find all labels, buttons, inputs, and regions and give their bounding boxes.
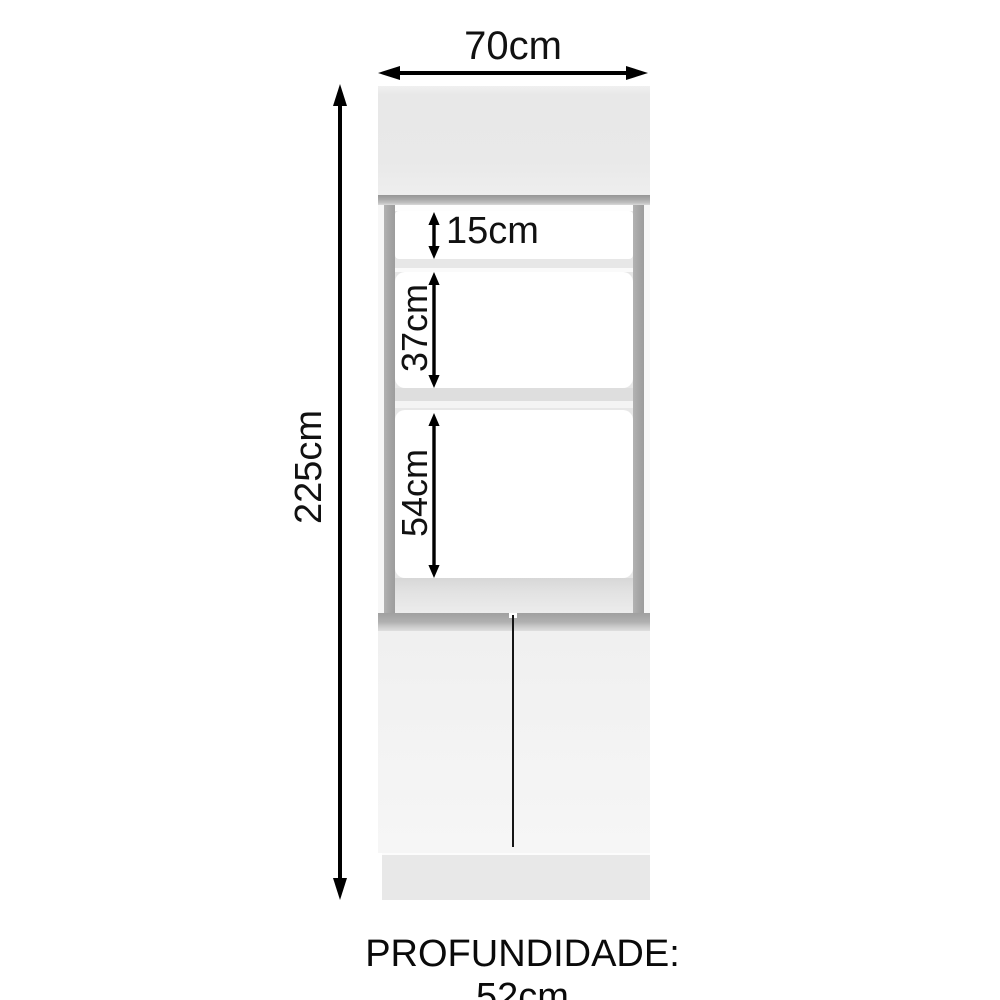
upper-door-trim bbox=[378, 195, 650, 205]
niche-top-dimension-label: 15cm bbox=[446, 211, 539, 253]
niche-left-column bbox=[384, 205, 395, 613]
niche-right-outer-edge bbox=[644, 205, 650, 613]
niche-right-column bbox=[633, 205, 644, 613]
niche-middle-dimension-label: 37cm bbox=[395, 273, 435, 383]
base-plinth bbox=[382, 853, 650, 900]
width-dimension-arrow bbox=[378, 65, 648, 81]
niche-bottom-dimension-label: 54cm bbox=[395, 438, 435, 548]
upper-door-panel bbox=[378, 86, 650, 195]
shelf-lower-edge bbox=[395, 401, 633, 408]
height-dimension-arrow bbox=[332, 84, 348, 900]
niche-top-dimension-arrow bbox=[427, 212, 441, 259]
lower-double-doors bbox=[378, 631, 650, 853]
depth-dimension-label: PROFUNDIDADE: 52cm bbox=[325, 933, 720, 1000]
product-dimension-diagram: 70cm 225cm bbox=[0, 0, 1000, 1000]
door-divider-line bbox=[512, 615, 514, 847]
niche-floor bbox=[395, 578, 633, 613]
height-dimension-label: 225cm bbox=[290, 407, 330, 527]
width-dimension-label: 70cm bbox=[378, 24, 648, 68]
shelf-lower bbox=[395, 388, 633, 401]
